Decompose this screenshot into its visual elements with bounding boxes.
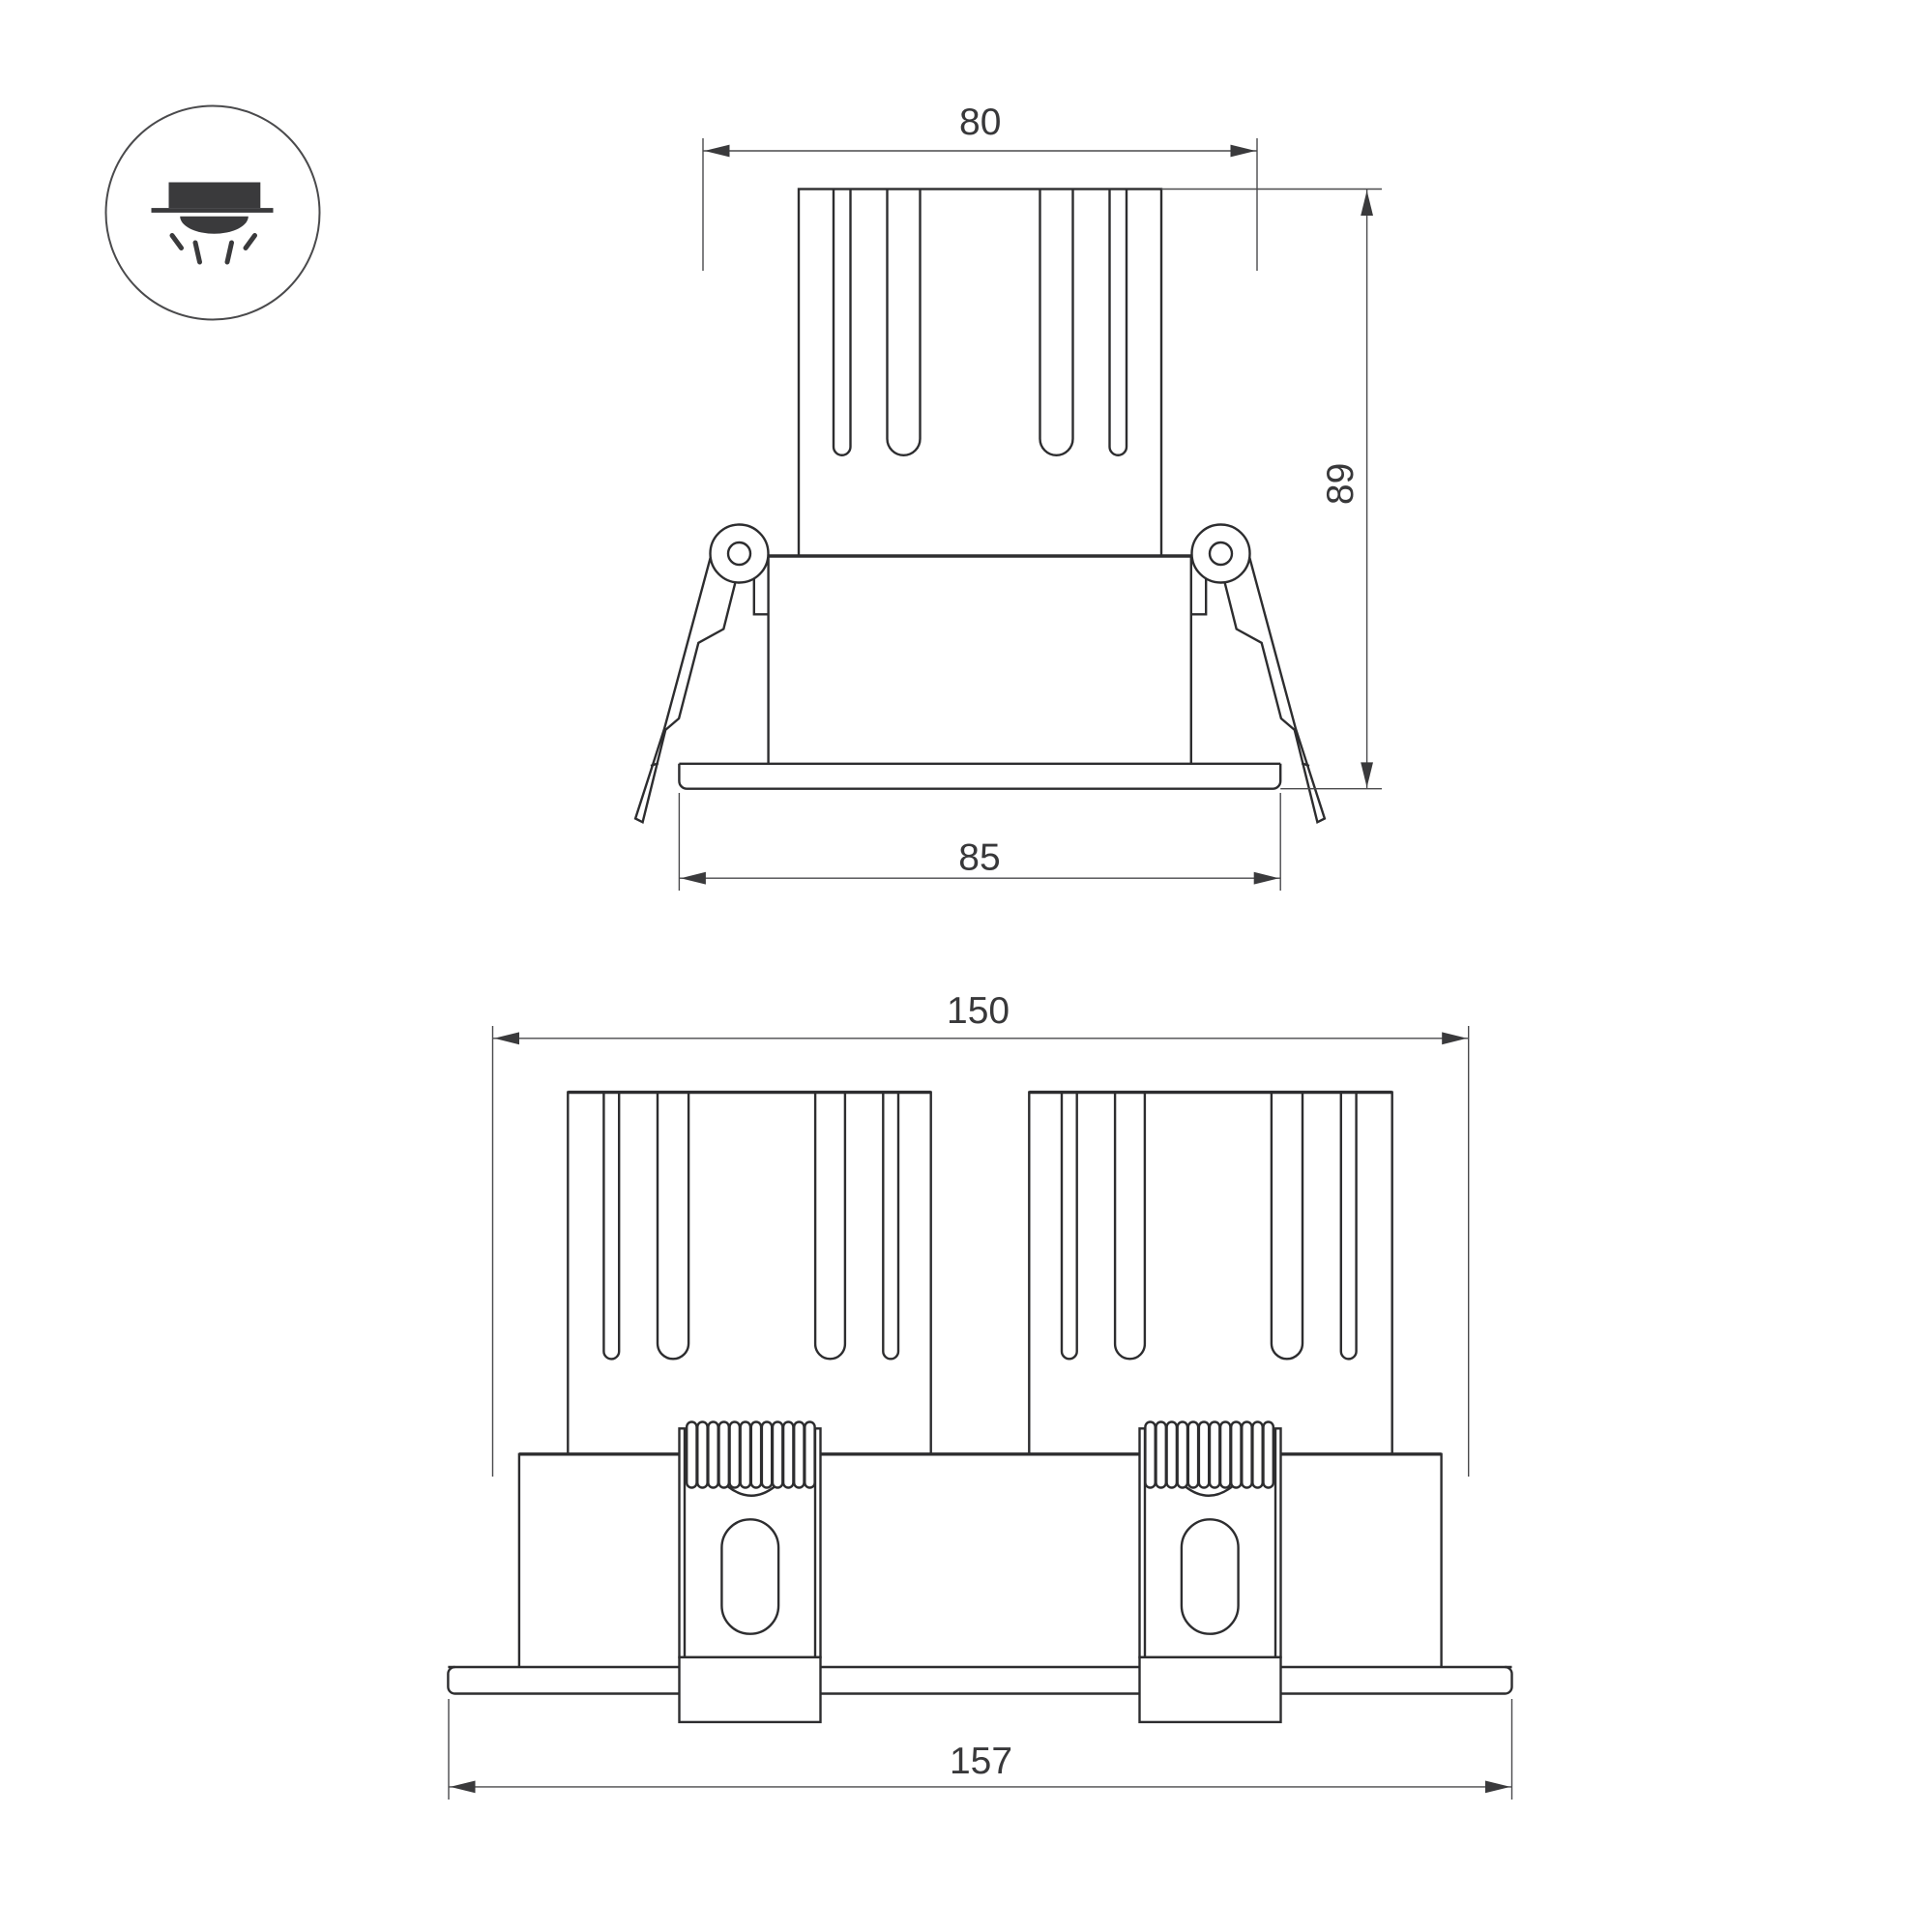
- svg-text:85: 85: [958, 837, 1000, 879]
- svg-text:89: 89: [1320, 463, 1361, 505]
- svg-text:150: 150: [947, 990, 1010, 1032]
- svg-text:157: 157: [950, 1741, 1012, 1782]
- svg-text:80: 80: [959, 102, 1001, 143]
